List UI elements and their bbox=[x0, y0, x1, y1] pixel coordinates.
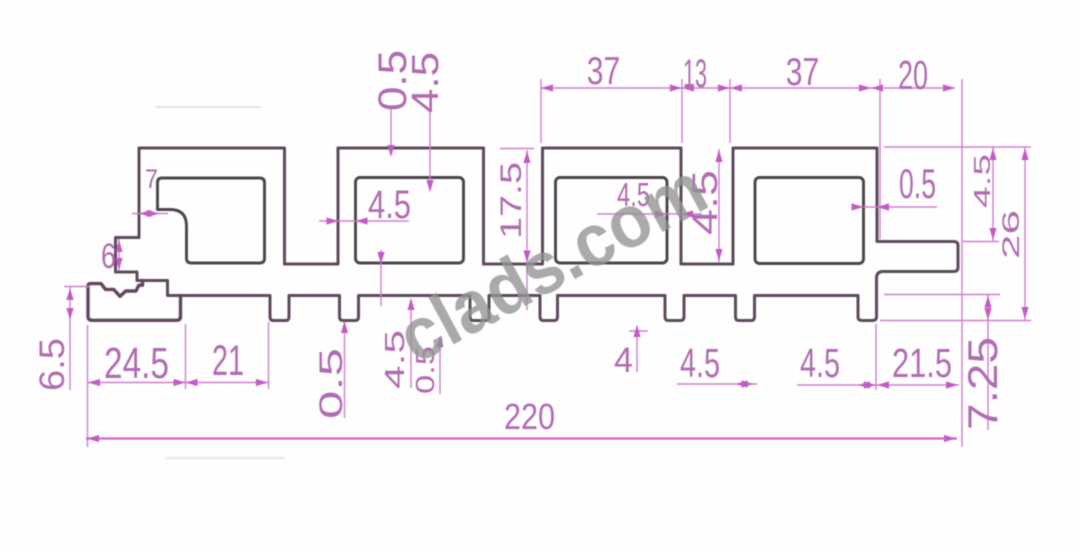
svg-text:4: 4 bbox=[614, 341, 633, 380]
svg-text:4.5: 4.5 bbox=[680, 340, 720, 386]
svg-text:26: 26 bbox=[998, 210, 1025, 259]
svg-text:6.5: 6.5 bbox=[33, 338, 72, 391]
svg-text:20: 20 bbox=[898, 52, 928, 98]
svg-text:4.5: 4.5 bbox=[405, 52, 447, 113]
svg-text:6: 6 bbox=[101, 237, 116, 276]
svg-text:13: 13 bbox=[683, 52, 707, 96]
svg-text:21.5: 21.5 bbox=[892, 340, 952, 386]
svg-text:7.25: 7.25 bbox=[959, 337, 1006, 430]
svg-text:24.5: 24.5 bbox=[104, 339, 169, 388]
svg-text:4.5: 4.5 bbox=[800, 340, 840, 386]
svg-text:37: 37 bbox=[587, 50, 621, 93]
svg-text:0.5: 0.5 bbox=[899, 160, 936, 207]
svg-text:4.5: 4.5 bbox=[368, 183, 411, 227]
svg-text:17.5: 17.5 bbox=[495, 162, 528, 239]
svg-text:4.5: 4.5 bbox=[969, 154, 995, 208]
svg-text:0.5: 0.5 bbox=[313, 348, 349, 419]
svg-text:37: 37 bbox=[786, 51, 820, 94]
svg-text:7: 7 bbox=[145, 164, 158, 194]
svg-text:21: 21 bbox=[212, 337, 244, 385]
svg-text:220: 220 bbox=[504, 396, 555, 437]
